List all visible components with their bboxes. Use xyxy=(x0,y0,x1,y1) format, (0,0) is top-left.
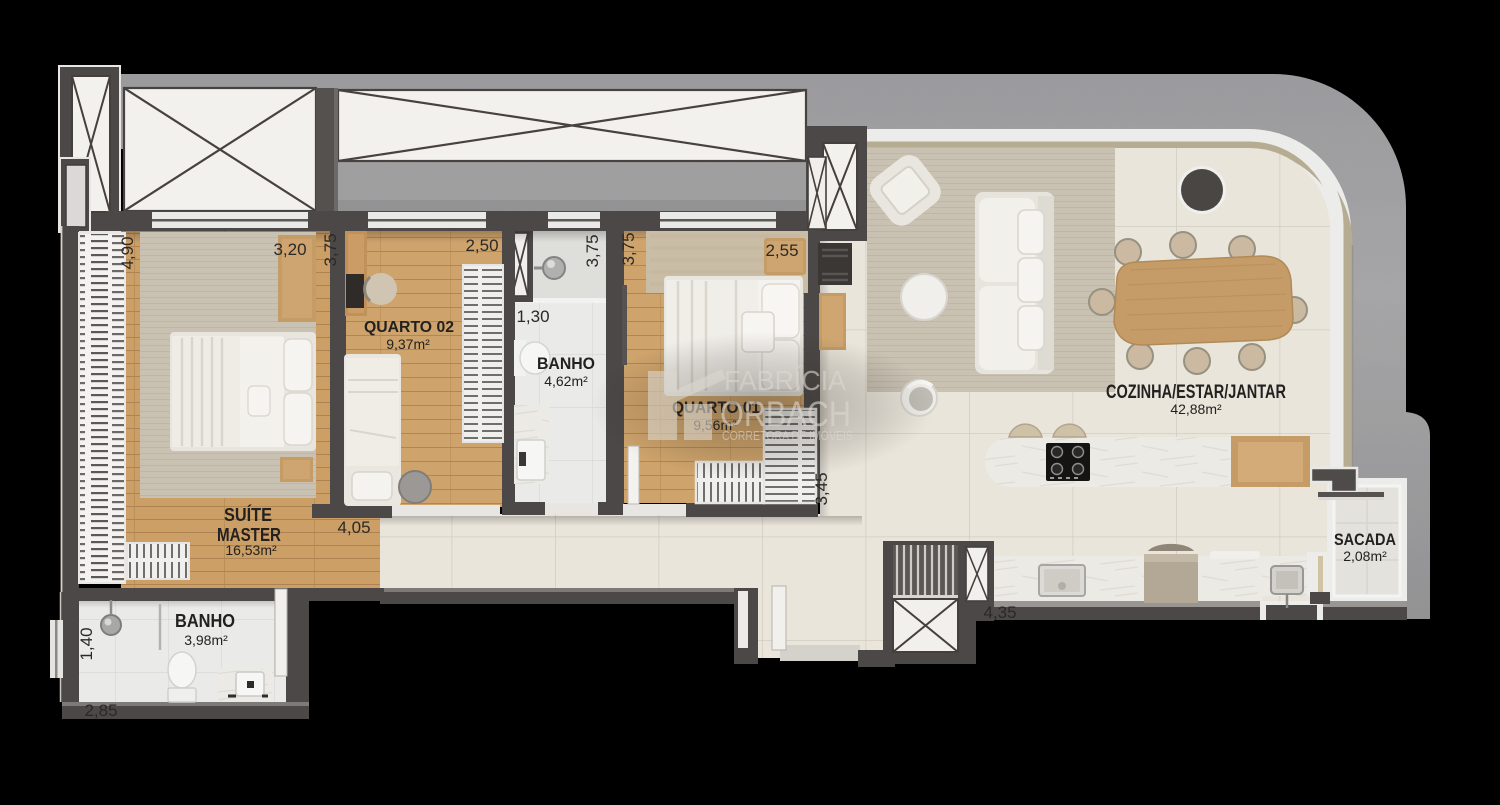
svg-text:16,53m²: 16,53m² xyxy=(225,542,277,558)
svg-text:COZINHA/ESTAR/JANTAR: COZINHA/ESTAR/JANTAR xyxy=(1106,382,1286,403)
svg-text:3,45: 3,45 xyxy=(812,472,831,505)
svg-text:3,20: 3,20 xyxy=(273,240,306,259)
svg-text:2,55: 2,55 xyxy=(765,241,798,260)
svg-text:CORRETORA DE IMÓVEIS: CORRETORA DE IMÓVEIS xyxy=(722,428,853,443)
svg-text:4,90: 4,90 xyxy=(118,236,137,269)
svg-text:SUÍTE: SUÍTE xyxy=(224,504,272,525)
svg-text:3,98m²: 3,98m² xyxy=(184,632,228,648)
svg-text:SACADA: SACADA xyxy=(1334,530,1396,549)
svg-text:9,37m²: 9,37m² xyxy=(386,336,430,352)
svg-text:QUARTO 02: QUARTO 02 xyxy=(364,319,454,336)
svg-text:4,35: 4,35 xyxy=(983,603,1016,622)
svg-text:2,50: 2,50 xyxy=(465,236,498,255)
svg-text:4,62m²: 4,62m² xyxy=(544,373,588,389)
svg-text:1,30: 1,30 xyxy=(516,307,549,326)
svg-text:2,85: 2,85 xyxy=(84,701,117,720)
svg-text:2,08m²: 2,08m² xyxy=(1343,548,1387,564)
svg-text:3,75: 3,75 xyxy=(321,233,340,266)
svg-text:3,75: 3,75 xyxy=(583,234,602,267)
svg-text:BANHO: BANHO xyxy=(175,611,235,631)
svg-text:FABRÍCIA: FABRÍCIA xyxy=(724,365,846,396)
svg-text:42,88m²: 42,88m² xyxy=(1170,401,1222,417)
svg-text:4,05: 4,05 xyxy=(337,518,370,537)
svg-text:1,40: 1,40 xyxy=(77,627,96,660)
svg-text:3,75: 3,75 xyxy=(619,232,638,265)
svg-text:BANHO: BANHO xyxy=(537,354,595,373)
